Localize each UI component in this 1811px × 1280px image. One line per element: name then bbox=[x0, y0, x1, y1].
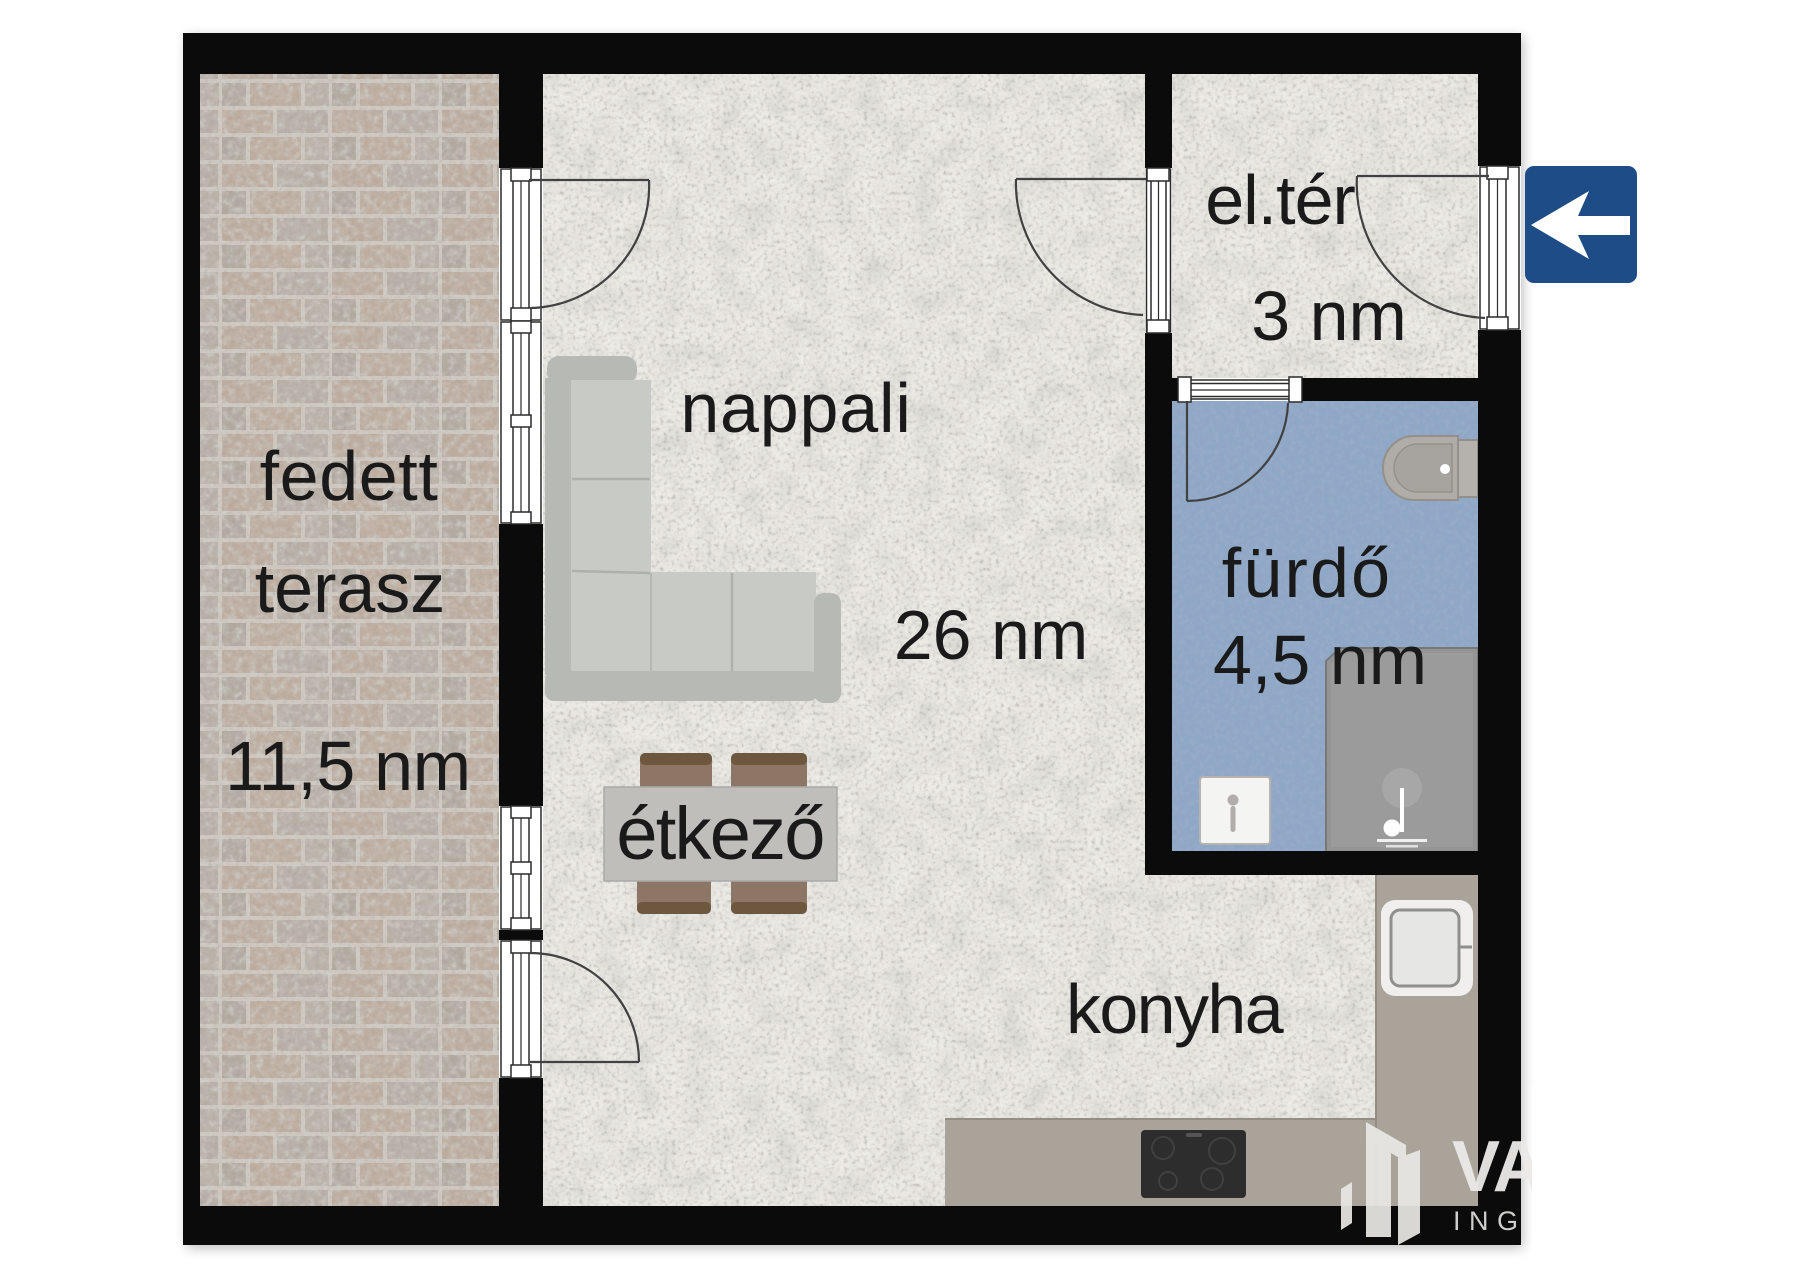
svg-text:nappali: nappali bbox=[680, 369, 911, 447]
svg-text:ING: ING bbox=[1453, 1206, 1527, 1236]
svg-text:11,5 nm: 11,5 nm bbox=[225, 727, 471, 805]
svg-text:terasz: terasz bbox=[255, 549, 446, 627]
svg-text:fürdő: fürdő bbox=[1222, 534, 1393, 612]
svg-text:el.tér: el.tér bbox=[1205, 161, 1355, 239]
svg-text:étkező: étkező bbox=[616, 792, 823, 875]
svg-text:VA: VA bbox=[1452, 1127, 1544, 1207]
svg-text:fedett: fedett bbox=[260, 437, 439, 515]
svg-text:3 nm: 3 nm bbox=[1251, 277, 1407, 355]
svg-text:26 nm: 26 nm bbox=[894, 596, 1089, 674]
svg-text:4,5 nm: 4,5 nm bbox=[1213, 621, 1427, 699]
svg-text:konyha: konyha bbox=[1066, 970, 1284, 1048]
